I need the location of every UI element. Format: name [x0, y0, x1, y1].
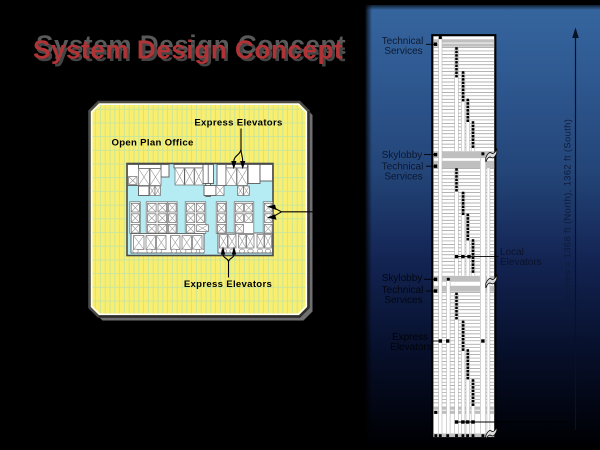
svg-text:System Design Concept: System Design Concept: [33, 35, 343, 65]
svg-text:Elevators: Elevators: [390, 342, 432, 353]
svg-text:Express Elevators: Express Elevators: [184, 279, 272, 290]
svg-text:Open Plan Office: Open Plan Office: [112, 138, 194, 149]
svg-text:Services: Services: [384, 172, 422, 183]
svg-text:Elevators: Elevators: [500, 257, 542, 268]
svg-text:110 stories = 1368 ft (North),: 110 stories = 1368 ft (North), 1362 ft (…: [563, 119, 573, 319]
svg-text:Skylobby: Skylobby: [382, 150, 423, 161]
svg-text:Concourse: Concourse: [504, 424, 550, 435]
svg-text:Services: Services: [384, 295, 422, 306]
svg-text:Skylobby: Skylobby: [382, 273, 423, 284]
svg-text:Services: Services: [384, 46, 422, 57]
svg-text:Express Elevators: Express Elevators: [194, 118, 282, 129]
